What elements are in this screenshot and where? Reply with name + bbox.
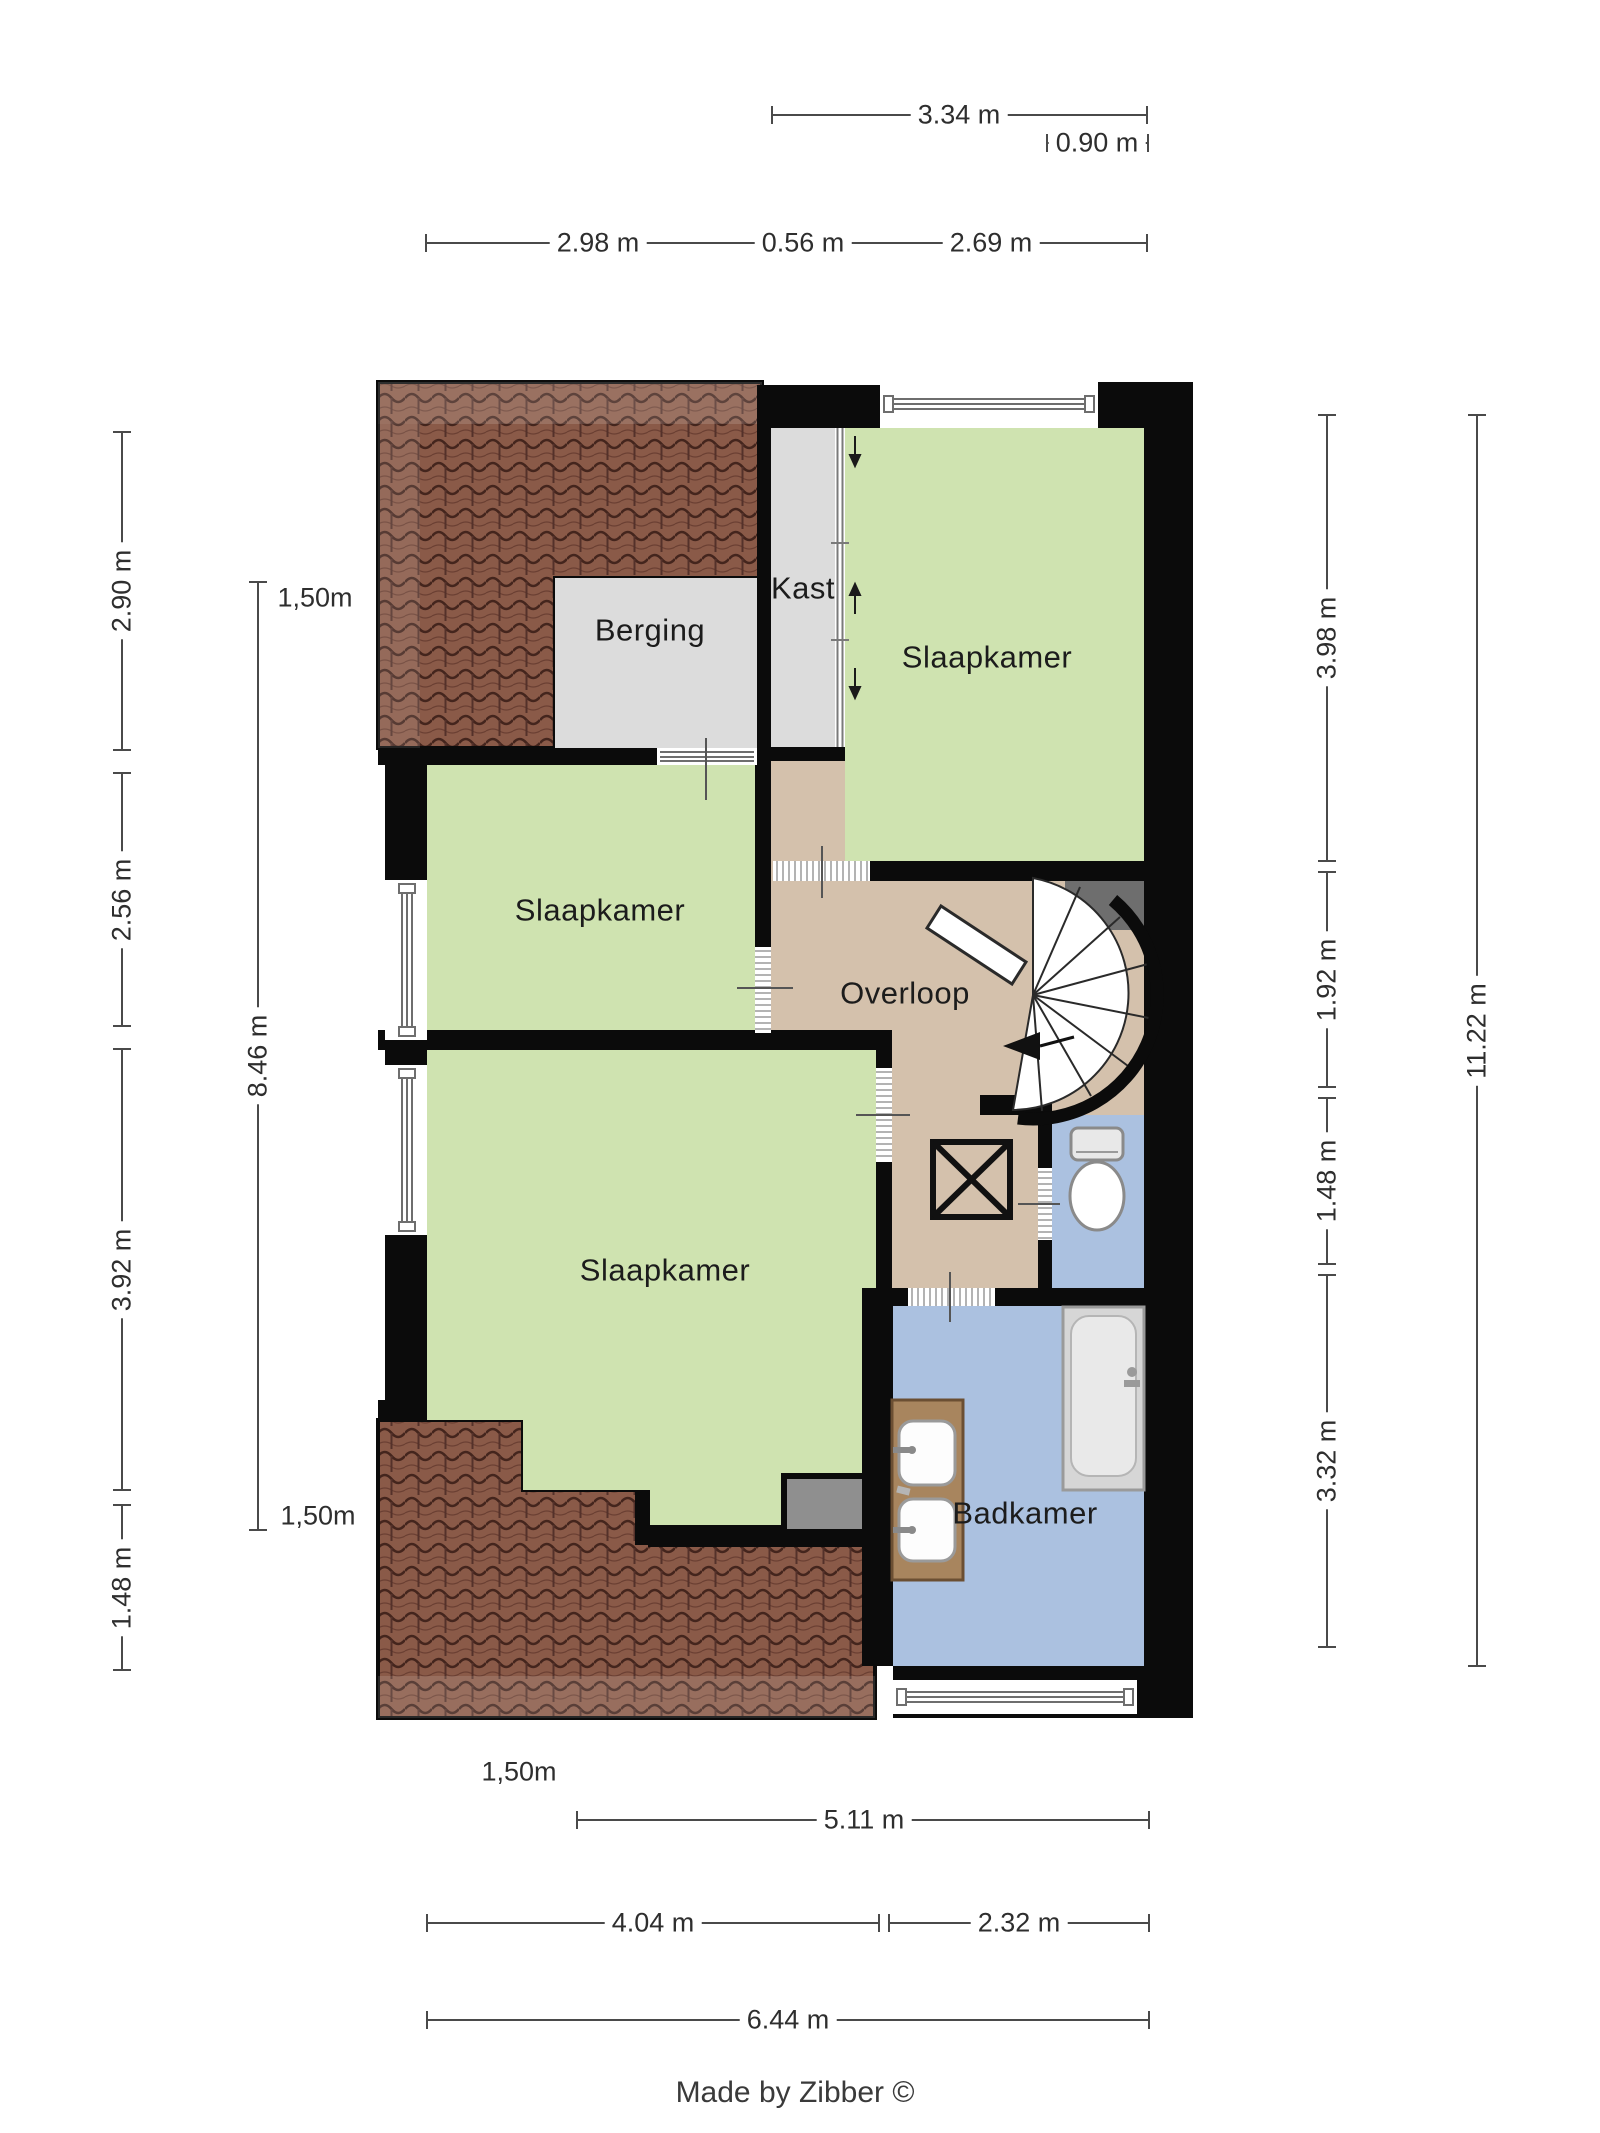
dim-bottom-511: 5.11 m (817, 1807, 912, 1834)
gray-niche (784, 1476, 872, 1532)
dim-left-846: 8.46 m (245, 1008, 272, 1105)
window-left-bottom-bedroom (385, 1065, 427, 1235)
floorplan-page: Berging Kast Slaapkamer Slaapkamer Overl… (0, 0, 1600, 2133)
window-top (880, 385, 1098, 428)
window-badkamer-bottom (893, 1680, 1137, 1714)
dim-top-056: 0.56 m (755, 230, 852, 257)
window-left-middle-bedroom (385, 880, 427, 1040)
room-label-slaapkamer-bottom: Slaapkamer (580, 1255, 750, 1286)
dim-bottom-404: 4.04 m (605, 1910, 702, 1937)
dim-top-269: 2.69 m (943, 230, 1040, 257)
dim-right-398: 3.98 m (1314, 590, 1341, 687)
dim-right-1122: 11.22 m (1464, 976, 1491, 1086)
dim-right-148: 1.48 m (1314, 1133, 1341, 1230)
double-sink-vanity (892, 1400, 963, 1580)
dim-top-334: 3.34 m (911, 102, 1008, 129)
dim-right-192: 1.92 m (1314, 932, 1341, 1029)
dim-top-090: 0.90 m (1049, 130, 1146, 157)
floorplan-drawing (0, 0, 1600, 2133)
room-label-slaapkamer-middle: Slaapkamer (515, 895, 685, 926)
room-label-badkamer: Badkamer (952, 1498, 1097, 1529)
bathtub (1063, 1307, 1144, 1490)
room-label-berging: Berging (595, 615, 705, 646)
dim-right-332: 3.32 m (1314, 1413, 1341, 1510)
height-marker-top: 1,50m (277, 585, 352, 612)
credit-footer: Made by Zibber © (676, 2076, 915, 2110)
room-label-kast: Kast (771, 573, 835, 604)
dim-left-148: 1.48 m (109, 1540, 136, 1637)
dim-bottom-644: 6.44 m (740, 2007, 837, 2034)
dim-bottom-150: 1,50m (481, 1759, 556, 1786)
dim-left-290: 2.90 m (109, 543, 136, 640)
toilet (1070, 1128, 1124, 1230)
dim-top-298: 2.98 m (550, 230, 647, 257)
dim-left-392: 3.92 m (109, 1222, 136, 1319)
dim-left-256: 2.56 m (109, 852, 136, 949)
room-berging-floor (555, 578, 757, 748)
dim-bottom-232: 2.32 m (971, 1910, 1068, 1937)
room-label-slaapkamer-top: Slaapkamer (902, 642, 1072, 673)
room-label-overloop: Overloop (840, 978, 970, 1009)
height-marker-bottom: 1,50m (280, 1503, 355, 1530)
